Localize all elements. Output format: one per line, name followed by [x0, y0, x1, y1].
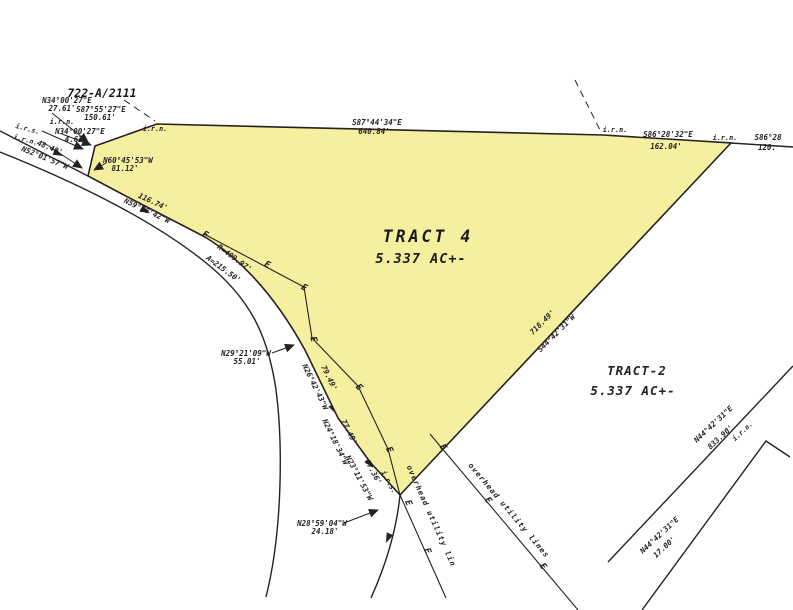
road-right-edge-lower	[371, 495, 400, 598]
call-distance: 27.61'	[47, 104, 75, 113]
tract4-boundary	[88, 124, 731, 495]
call-distance: 150.61'	[84, 113, 116, 122]
tract4-parcel	[88, 124, 793, 495]
iron-rod-new-label: i.r.n.	[50, 118, 75, 126]
road-distance: 55.01'	[233, 357, 260, 366]
iron-rod-new-label: i.r.n.	[143, 125, 168, 133]
call-distance: 640.84'	[358, 127, 390, 136]
call-distance: 120.	[758, 143, 776, 152]
tract2-lines	[608, 366, 793, 610]
utility-label-long: overhead utility lines	[466, 461, 551, 560]
iron-rod-new-label: i.r.n.	[713, 134, 738, 142]
leader-24-18	[344, 510, 378, 523]
call-bearing: S86°28	[754, 133, 782, 142]
utility-line-b	[430, 434, 578, 610]
call-distance: 162.04'	[650, 142, 682, 151]
survey-plat: E E E E E E E E E E E overhead utility l…	[0, 0, 793, 610]
road-distance: 24.18'	[310, 527, 338, 536]
utility-label-short: overhead utility lin	[405, 464, 458, 568]
call-distance: 4.63'	[65, 135, 88, 144]
iron-rod-new-label: i.r.n.	[603, 126, 628, 134]
utility-pole-symbol: E	[402, 499, 414, 509]
plat-drawing: E E E E E E E E E E E overhead utility l…	[0, 0, 793, 610]
deed-dashed-leader	[124, 100, 155, 121]
tract2-title: TRACT-2	[607, 363, 667, 378]
call-bearing: S86°28'32"E	[643, 130, 693, 139]
call-bearing: S87°44'34"E	[352, 118, 402, 127]
tract4-area: 5.337 AC+-	[375, 251, 466, 267]
tract2-area: 5.337 AC+-	[590, 383, 675, 398]
top-dashed-leader	[575, 80, 601, 132]
tract4-title: TRACT 4	[383, 227, 474, 246]
road-distance: 81.12'	[111, 164, 138, 173]
leader-55-01	[272, 345, 294, 353]
iron-rod-new-label: i.r.n.	[731, 420, 754, 443]
